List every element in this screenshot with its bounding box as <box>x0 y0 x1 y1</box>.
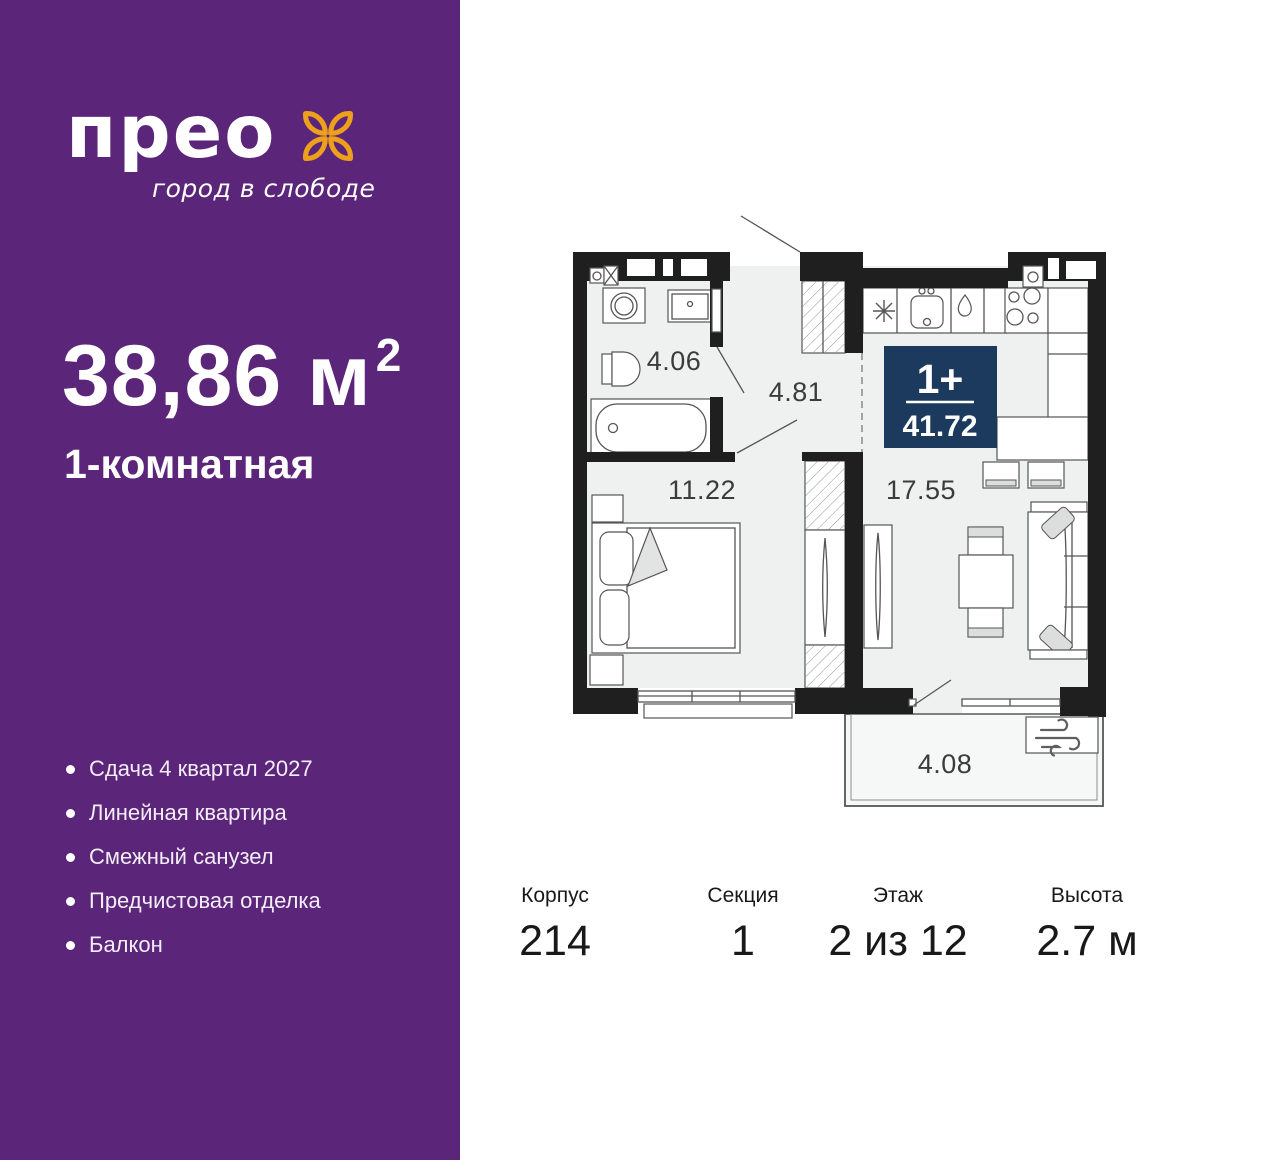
hall-wardrobe <box>802 281 845 353</box>
badge-total-area: 41.72 <box>902 410 977 443</box>
feature-label: Сдача 4 квартал 2027 <box>89 756 313 782</box>
spec-label: Секция <box>707 884 778 908</box>
feature-label: Смежный санузел <box>89 844 274 870</box>
entry-door-line <box>741 216 800 252</box>
bedroom-closet <box>805 461 845 688</box>
spec-value: 2 из 12 <box>828 917 967 966</box>
spec-value: 1 <box>707 917 778 966</box>
bullet-icon <box>66 897 75 906</box>
brand-logo: прео <box>66 96 366 174</box>
bullet-icon <box>66 765 75 774</box>
floor-plan: 4.06 4.81 11.22 17.55 4.08 1+ 41.72 <box>540 195 1150 840</box>
feature-item: Сдача 4 квартал 2027 <box>66 756 321 782</box>
spec-building: Корпус 214 <box>519 884 591 966</box>
sofa <box>1028 502 1088 659</box>
spec-floor: Этаж 2 из 12 <box>828 884 967 966</box>
listing-card: прео город в слободе 38,86 м2 1-комнатна… <box>0 0 1280 1160</box>
area-superscript: 2 <box>376 329 403 381</box>
spec-label: Корпус <box>519 884 591 908</box>
feature-label: Предчистовая отделка <box>89 888 321 914</box>
apartment-area: 38,86 м2 <box>62 332 402 419</box>
brand-tagline: город в слободе <box>152 174 375 203</box>
vent-shaft-icon <box>1023 266 1043 287</box>
apartment-type: 1-комнатная <box>64 441 314 488</box>
feature-item: Линейная квартира <box>66 800 321 826</box>
living-cabinet <box>864 525 892 648</box>
spec-label: Высота <box>1036 884 1137 908</box>
bath-shaft-icon <box>604 266 618 285</box>
feature-label: Линейная квартира <box>89 800 287 826</box>
room-label-kitchen-living: 17.55 <box>886 475 956 505</box>
cooktop <box>1005 288 1048 333</box>
feature-item: Смежный санузел <box>66 844 321 870</box>
bathroom-sink <box>668 290 712 322</box>
bullet-icon <box>66 809 75 818</box>
room-label-balcony: 4.08 <box>918 749 973 779</box>
bathtub <box>591 399 711 457</box>
feature-item: Балкон <box>66 932 321 958</box>
washing-machine <box>603 288 645 323</box>
spec-label: Этаж <box>828 884 967 908</box>
balcony-vent-icon <box>1026 717 1098 756</box>
feature-label: Балкон <box>89 932 163 958</box>
feature-item: Предчистовая отделка <box>66 888 321 914</box>
logo-text: прео <box>66 96 276 169</box>
bath-vent-icon <box>590 268 604 283</box>
bedroom-window <box>638 688 795 718</box>
spec-section: Секция 1 <box>707 884 778 966</box>
area-value: 38,86 м <box>62 328 372 424</box>
room-label-bathroom: 4.06 <box>647 346 702 376</box>
spec-value: 214 <box>519 917 591 966</box>
flower-logo-icon <box>290 98 366 174</box>
bullet-icon <box>66 941 75 950</box>
stove-icon <box>873 300 895 322</box>
sidebar: прео город в слободе 38,86 м2 1-комнатна… <box>0 0 460 1160</box>
room-label-hallway: 4.81 <box>769 377 824 407</box>
badge-rooms: 1+ <box>917 356 964 402</box>
spec-value: 2.7 м <box>1036 917 1137 966</box>
bullet-icon <box>66 853 75 862</box>
living-window <box>962 699 1060 706</box>
room-label-bedroom: 11.22 <box>668 475 736 505</box>
layout-badge: 1+ 41.72 <box>884 346 997 448</box>
toilet <box>602 352 640 386</box>
feature-list: Сдача 4 квартал 2027 Линейная квартира С… <box>66 756 321 976</box>
spec-height: Высота 2.7 м <box>1036 884 1137 966</box>
